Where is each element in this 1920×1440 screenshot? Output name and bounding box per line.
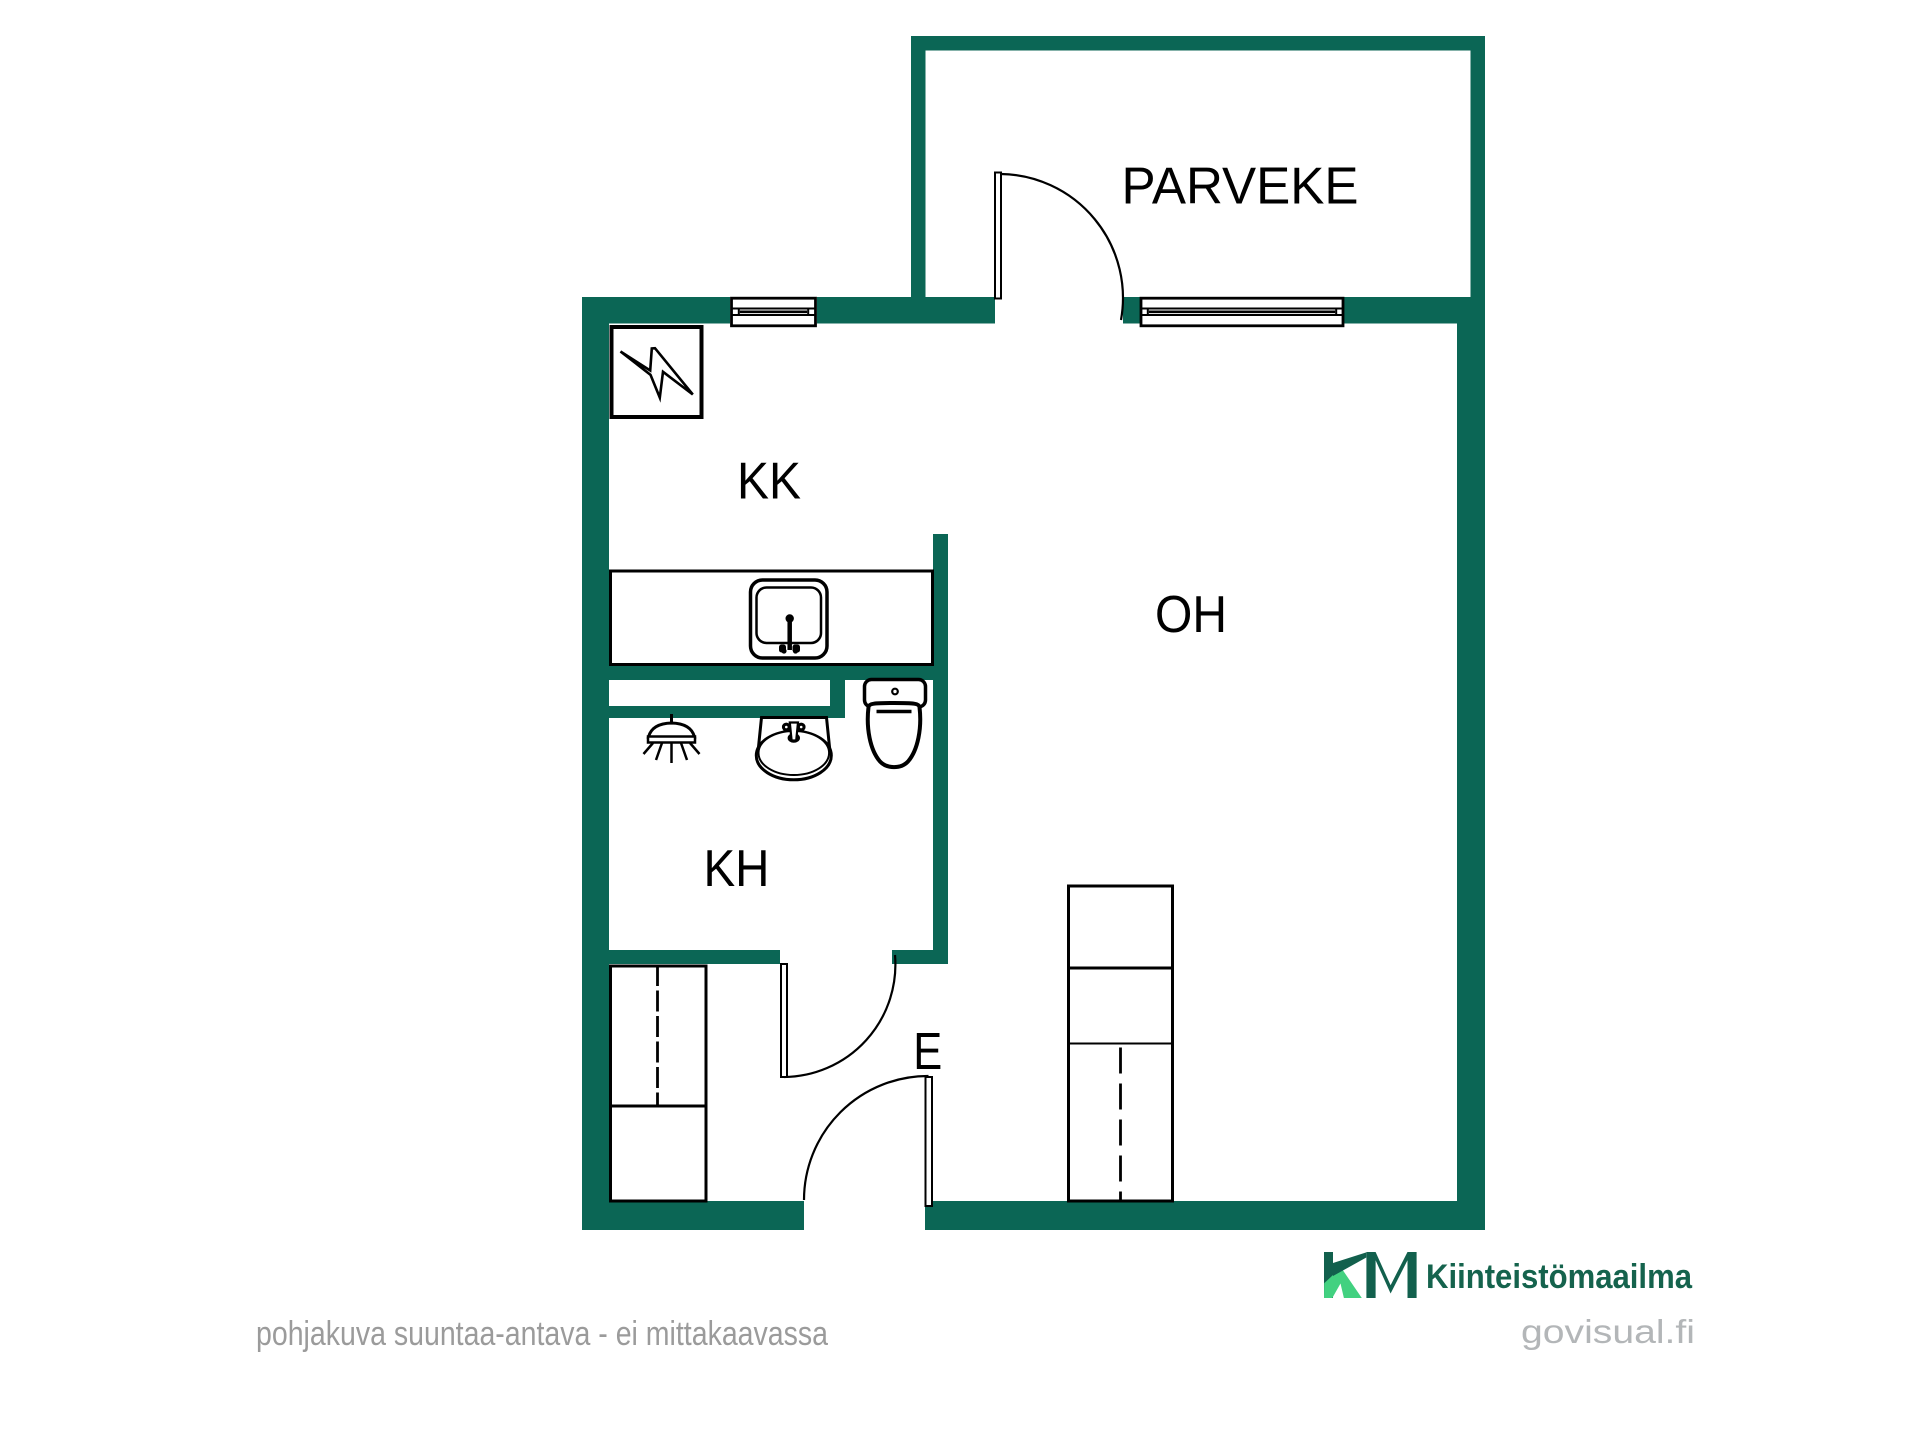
svg-text:govisual.fi: govisual.fi [1521, 1314, 1695, 1351]
svg-text:OH: OH [1155, 586, 1227, 644]
svg-text:PARVEKE: PARVEKE [1122, 158, 1359, 216]
svg-text:pohjakuva suuntaa-antava - ei: pohjakuva suuntaa-antava - ei mittakaava… [256, 1315, 828, 1353]
svg-text:KK: KK [737, 453, 801, 511]
svg-text:KH: KH [704, 840, 770, 898]
svg-text:Kiinteistömaailma: Kiinteistömaailma [1426, 1258, 1693, 1296]
svg-text:E: E [913, 1023, 942, 1081]
